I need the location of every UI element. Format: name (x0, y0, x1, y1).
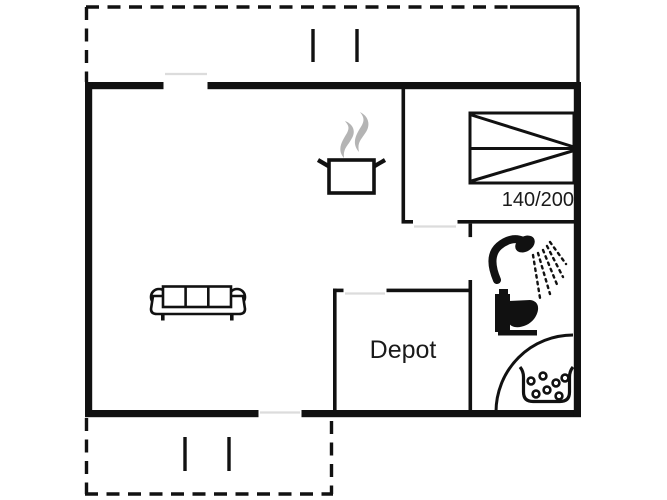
wall-bathroom-stub (469, 224, 473, 238)
steam-icon (340, 112, 368, 158)
sofa-cushions (163, 287, 231, 308)
floorplan-canvas: 140/200 Depot (0, 0, 667, 500)
washbasin-icon (520, 367, 573, 402)
toilet-icon (495, 289, 538, 336)
wall-depot-top-right (387, 289, 472, 293)
shower-icon (492, 232, 566, 298)
wall-bedroom-left (402, 89, 406, 224)
terrace-top (86, 7, 579, 82)
wall-bedroom-bathroom (458, 220, 575, 224)
wall-bottom-right (302, 410, 582, 417)
wall-left (85, 82, 92, 417)
cooking-pot-icon (318, 160, 385, 193)
sofa-icon (151, 287, 245, 321)
bed-size-label: 140/200 (500, 190, 574, 210)
depot-room-label: Depot (335, 338, 471, 363)
wall-bedroom-left-foot (402, 220, 414, 224)
terrace-bottom (85, 418, 333, 494)
floorplan-svg (0, 0, 667, 500)
wall-top-right (208, 82, 582, 89)
wall-bottom-left (85, 410, 259, 417)
wall-top-left (85, 82, 164, 89)
double-bed-icon (470, 113, 574, 183)
